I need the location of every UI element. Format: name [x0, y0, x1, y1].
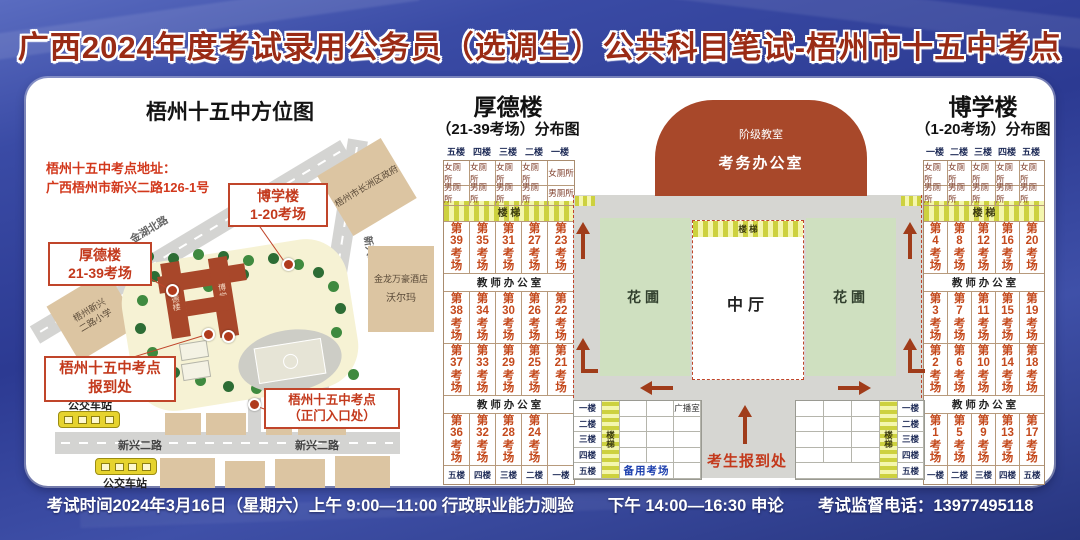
houde-room-row-c: 第 37 考 场第 33 考 场第 29 考 场第 25 考 场第 21 考 场 — [444, 344, 574, 396]
exam-room: 第 8 考 场 — [948, 222, 972, 274]
footer-bar: 考试时间2024年3月16日（星期六）上午 9:00—11:00 行政职业能力测… — [0, 492, 1080, 516]
exam-room: 第 28 考 场 — [496, 414, 522, 466]
road-xinxing-label-left: 新兴二路 — [118, 437, 162, 453]
map-title: 梧州十五中方位图 — [120, 96, 340, 126]
exam-room: 第 26 考 场 — [522, 292, 548, 344]
flower-garden-left: 花圃 — [600, 218, 690, 376]
exam-room: 第 3 考 场 — [924, 292, 948, 344]
stairs-column: 楼 梯 — [880, 401, 898, 479]
lecture-hall-label: 阶级教室 — [655, 126, 867, 142]
exam-room: 第 35 考 场 — [470, 222, 496, 274]
boxue-subtitle: （1-20考场）分布图 — [898, 118, 1068, 139]
houde-title: 厚德楼 — [433, 88, 583, 122]
teachers-office-band: 教 师 办 公 室 — [444, 274, 574, 292]
houde-building-table: 女厕所女厕所女厕所女厕所女厕所 男厕所男厕所男厕所男厕所男厕所 楼 梯 第 39… — [443, 160, 575, 485]
exam-room: 第 20 考 场 — [1020, 222, 1044, 274]
annex-table-right: 楼 梯 一楼 二楼 三楼 四楼 五楼 — [795, 400, 925, 480]
exam-room: 第 6 考 场 — [948, 344, 972, 396]
exam-room: 第 14 考 场 — [996, 344, 1020, 396]
exam-room: 第 39 考 场 — [444, 222, 470, 274]
map-address-line2: 广西梧州市新兴二路126-1号 — [46, 177, 209, 196]
exam-room: 第 19 考 场 — [1020, 292, 1044, 344]
houde-subtitle: （21-39考场）分布图 — [418, 118, 598, 139]
teachers-office-band: 教 师 办 公 室 — [924, 396, 1044, 414]
boxue-floor-header: 一楼二楼三楼四楼五楼 — [923, 145, 1043, 158]
teachers-office-band: 教 师 办 公 室 — [924, 274, 1044, 292]
road-xinxing-er — [55, 432, 400, 454]
toilet-row-female: 女厕所女厕所女厕所女厕所女厕所 — [444, 161, 574, 181]
road-dash — [61, 442, 393, 444]
boxue-room-row-c: 第 2 考 场第 6 考 场第 10 考 场第 14 考 场第 18 考 场 — [924, 344, 1044, 396]
exam-room: 第 9 考 场 — [972, 414, 996, 466]
houde-room-row-b: 第 38 考 场第 34 考 场第 30 考 场第 26 考 场第 22 考 场 — [444, 292, 574, 344]
callout-boxue: 博学楼1-20考场 — [228, 183, 328, 227]
exam-room: 第 7 考 场 — [948, 292, 972, 344]
boxue-room-row-b: 第 3 考 场第 7 考 场第 11 考 场第 15 考 场第 19 考 场 — [924, 292, 1044, 344]
exam-room: 第 31 考 场 — [496, 222, 522, 274]
building-primary-school-label: 梧州新兴二路小学 — [72, 297, 115, 336]
building-walmart-label: 沃尔玛 — [368, 292, 434, 305]
exam-room: 第 13 考 场 — [996, 414, 1020, 466]
teachers-office-band: 教 师 办 公 室 — [444, 396, 574, 414]
exam-room: 第 12 考 场 — [972, 222, 996, 274]
building-government-label: 梧州市长洲区政府 — [333, 163, 401, 210]
boxue-room-row-a: 第 4 考 场第 8 考 场第 12 考 场第 16 考 场第 20 考 场 — [924, 222, 1044, 274]
exam-room: 第 29 考 场 — [496, 344, 522, 396]
callout-gate: 梧州十五中考点（正门入口处） — [264, 388, 400, 429]
houde-floor-footer: 五楼四楼三楼二楼一楼 — [444, 466, 574, 484]
exam-room: 第 27 考 场 — [522, 222, 548, 274]
boxue-floor-footer: 一楼二楼三楼四楼五楼 — [924, 466, 1044, 484]
toilet-row-male: 男厕所男厕所男厕所男厕所男厕所 — [924, 181, 1044, 201]
backup-exam-room: 备用考场 — [620, 463, 674, 479]
bus-icon — [58, 411, 120, 428]
callout-houde: 厚德楼21-39考场 — [48, 242, 152, 286]
exam-room: 第 5 考 场 — [948, 414, 972, 466]
page-title: 广西2024年度考试录用公务员（选调生）公共科目笔试-梧州市十五中考点 — [0, 22, 1080, 67]
map-pin — [166, 284, 179, 297]
exam-room: 第 11 考 场 — [972, 292, 996, 344]
road-xinxing-label-right: 新兴二路 — [295, 437, 339, 453]
map-building-block — [165, 413, 201, 435]
exam-room: 第 37 考 场 — [444, 344, 470, 396]
boxue-room-row-d: 第 1 考 场第 5 考 场第 9 考 场第 13 考 场第 17 考 场 — [924, 414, 1044, 466]
map-building-block — [160, 458, 215, 488]
houde-floor-header: 五楼四楼三楼二楼一楼 — [443, 145, 573, 158]
map-pin — [248, 398, 261, 411]
broadcast-room: 广播室 — [674, 401, 701, 417]
central-hall-label: 中厅 — [693, 291, 803, 315]
boxue-title: 博学楼 — [908, 88, 1058, 122]
exam-room: 第 38 考 场 — [444, 292, 470, 344]
map-building-block — [206, 413, 246, 435]
stairs-stub — [575, 196, 595, 206]
afternoon-exam-text: 下午 14:00—16:30 申论 — [608, 492, 784, 516]
exam-room: 第 16 考 场 — [996, 222, 1020, 274]
building-hotel-label: 金龙万豪酒店 — [368, 274, 434, 286]
checkin-label: 考生报到处 — [692, 450, 802, 471]
exam-room: 第 30 考 场 — [496, 292, 522, 344]
map-building-block — [275, 459, 325, 488]
exam-room: 第 22 考 场 — [548, 292, 574, 344]
exam-time-text: 考试时间2024年3月16日（星期六）上午 9:00—11:00 行政职业能力测… — [47, 492, 574, 516]
poster: 广西2024年度考试录用公务员（选调生）公共科目笔试-梧州市十五中考点 梧州十五… — [0, 0, 1080, 540]
exam-room: 第 25 考 场 — [522, 344, 548, 396]
bus-stop-label-bottom: 公交车站 — [103, 475, 147, 491]
map-pin — [202, 328, 215, 341]
exam-room: 第 21 考 场 — [548, 344, 574, 396]
exam-room: 第 34 考 场 — [470, 292, 496, 344]
annex-table-left: 一楼 楼 梯 广播室 二楼 三楼 四楼 五楼 备用考场 — [573, 400, 702, 480]
toilet-row-male: 男厕所男厕所男厕所男厕所男厕所 — [444, 181, 574, 201]
building-hotel: 金龙万豪酒店 沃尔玛 — [368, 246, 434, 332]
map-pin — [282, 258, 295, 271]
exam-room — [548, 414, 574, 466]
exam-office-label: 考务办公室 — [655, 152, 867, 173]
hall-stairs-band: 楼 梯 — [693, 221, 803, 237]
supervision-phone: 考试监督电话：13977495118 — [818, 492, 1034, 516]
exam-room: 第 24 考 场 — [522, 414, 548, 466]
exam-room: 第 15 考 场 — [996, 292, 1020, 344]
stairs-stub — [901, 196, 921, 206]
houde-room-row-d: 第 36 考 场第 32 考 场第 28 考 场第 24 考 场 — [444, 414, 574, 466]
map-building-block — [335, 456, 390, 488]
exam-office-building: 阶级教室 考务办公室 — [655, 100, 867, 196]
exam-room: 第 36 考 场 — [444, 414, 470, 466]
flower-garden-right: 花圃 — [806, 218, 896, 376]
toilet-row-female: 女厕所女厕所女厕所女厕所女厕所 — [924, 161, 1044, 181]
exam-room: 第 32 考 场 — [470, 414, 496, 466]
exam-room: 第 18 考 场 — [1020, 344, 1044, 396]
central-hall: 楼 梯 中厅 — [692, 220, 804, 380]
exam-room: 第 10 考 场 — [972, 344, 996, 396]
map-pin — [222, 330, 235, 343]
boxue-building-table: 女厕所女厕所女厕所女厕所女厕所 男厕所男厕所男厕所男厕所男厕所 楼 梯 第 4 … — [923, 160, 1045, 485]
center-circle — [282, 353, 299, 370]
houde-room-row-a: 第 39 考 场第 35 考 场第 31 考 场第 27 考 场第 23 考 场 — [444, 222, 574, 274]
exam-room: 第 2 考 场 — [924, 344, 948, 396]
map-address-line1: 梧州十五中考点地址： — [46, 158, 176, 177]
exam-room: 第 1 考 场 — [924, 414, 948, 466]
exam-room: 第 17 考 场 — [1020, 414, 1044, 466]
bus-icon — [95, 458, 157, 475]
soccer-field — [254, 338, 327, 384]
exam-room: 第 4 考 场 — [924, 222, 948, 274]
stairs-column: 楼 梯 — [602, 401, 620, 479]
map-building-block — [225, 461, 265, 488]
exam-room: 第 23 考 场 — [548, 222, 574, 274]
exam-room: 第 33 考 场 — [470, 344, 496, 396]
callout-checkin: 梧州十五中考点报到处 — [44, 356, 176, 402]
